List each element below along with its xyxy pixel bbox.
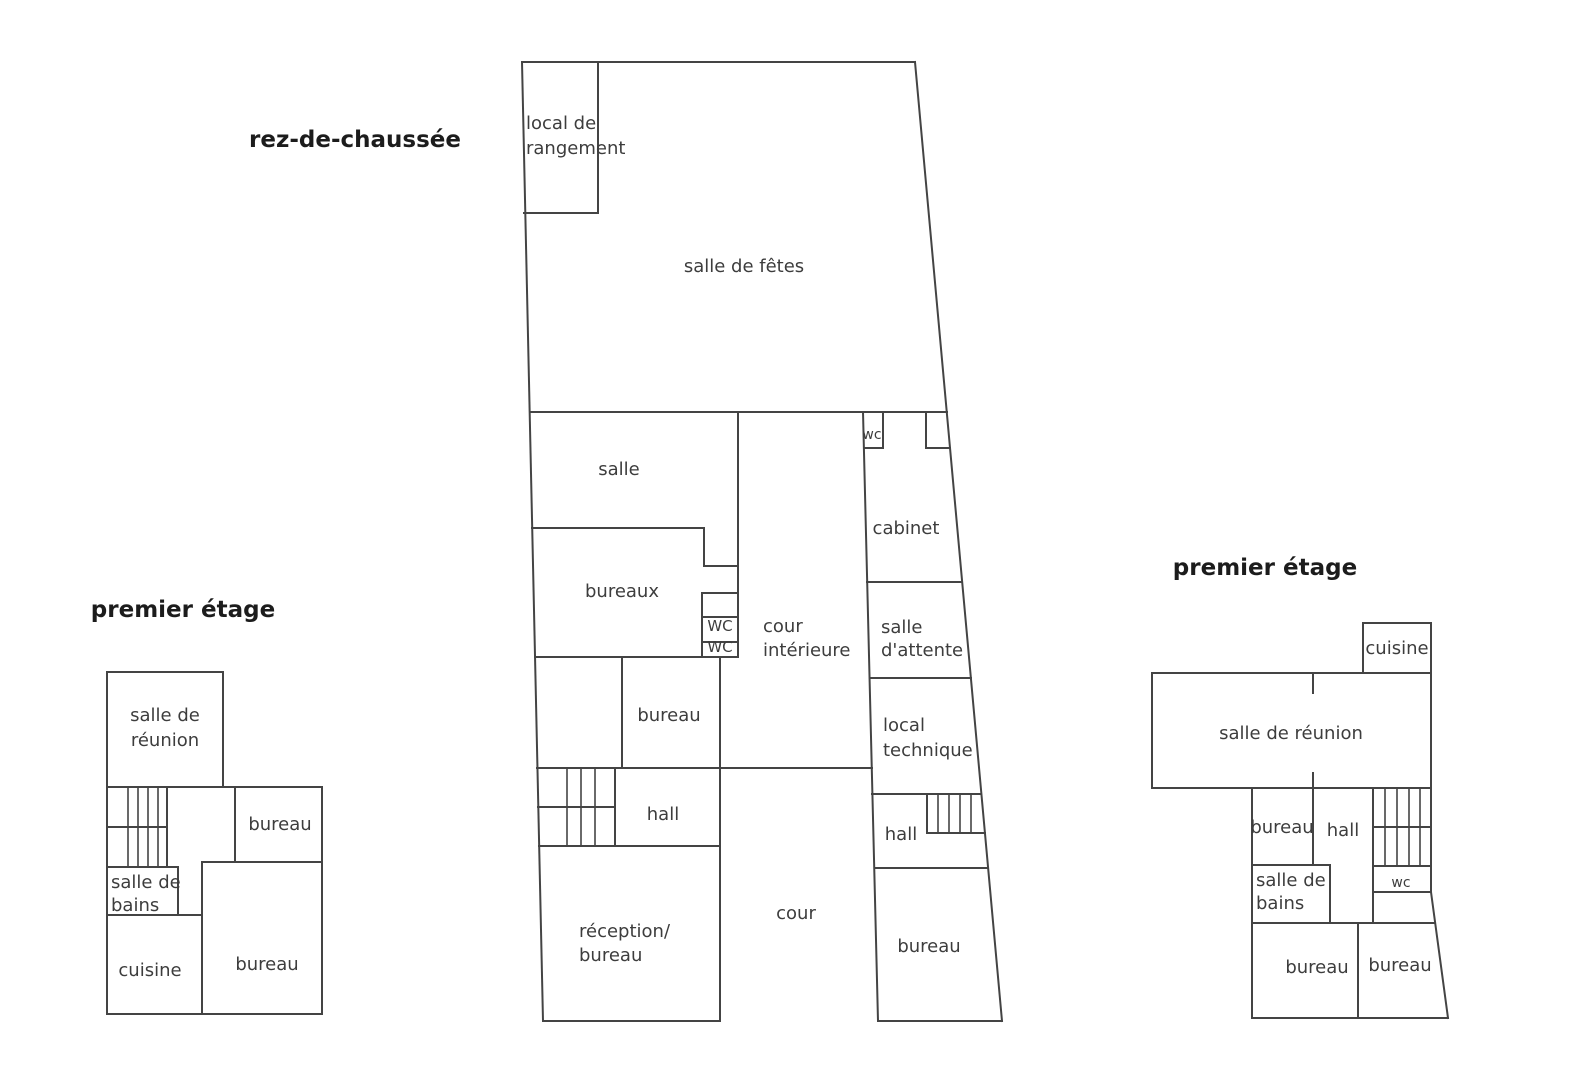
wall [1431, 892, 1448, 1018]
room-label-cuisine: cuisine [1365, 638, 1428, 659]
room-label-salle-de-reunion: réunion [131, 730, 199, 751]
room-label-bureau: bureau [248, 814, 311, 835]
room-label-cour-interieure: cour [763, 616, 803, 637]
room-label-bureaux: bureaux [585, 581, 659, 602]
room-label-salle-de-bains: salle de [1256, 870, 1326, 891]
room-label-cuisine: cuisine [118, 960, 181, 981]
room-label-local-de-rangement: local de [526, 113, 596, 134]
floor-plan-document: rez-de-chaussée local de rangement salle… [0, 0, 1585, 1080]
room-label-wc: wc [862, 427, 881, 443]
staircase [107, 787, 167, 867]
room-label-cabinet: cabinet [873, 518, 940, 539]
room-label-bureau: bureau [897, 936, 960, 957]
room-label-salle-de-reunion: salle de réunion [1219, 723, 1363, 744]
room-label-bureau: bureau [1368, 955, 1431, 976]
staircase [1373, 788, 1431, 865]
room-label-cour: cour [776, 903, 816, 924]
room-label-hall: hall [1327, 820, 1359, 841]
room-label-wc: WC [707, 638, 732, 656]
room-label-hall: hall [885, 824, 917, 845]
room-label-salle-de-bains: bains [1256, 893, 1304, 914]
staircase [538, 768, 615, 846]
room-label-local-de-rangement: rangement [526, 138, 625, 159]
floor-title-first-west: premier étage [91, 597, 275, 623]
room-label-salle-de-bains: bains [111, 895, 159, 916]
room-label-salle: salle [598, 459, 639, 480]
floor-plan-drawing: rez-de-chaussée local de rangement salle… [0, 0, 1585, 1080]
first-floor-west-plan: premier étage salle de réunion bureau sa… [91, 597, 322, 1014]
room-label-local-technique: technique [883, 740, 973, 761]
room-label-salle-de-bains: salle de [111, 872, 181, 893]
room-label-salle-d-attente: d'attente [881, 640, 963, 661]
room-label-hall: hall [647, 804, 679, 825]
room-label-bureau: bureau [1250, 817, 1313, 838]
wall [915, 62, 1002, 1021]
room-label-reception-bureau: réception/ [579, 921, 671, 942]
floor-title-first-east: premier étage [1173, 555, 1357, 581]
room-label-bureau: bureau [637, 705, 700, 726]
wall [863, 412, 878, 1021]
ground-floor-plan: rez-de-chaussée local de rangement salle… [249, 62, 1002, 1021]
ground-floor-walls [522, 62, 1002, 1021]
floor-title-ground: rez-de-chaussée [249, 127, 461, 153]
room-label-salle-de-reunion: salle de [130, 705, 200, 726]
room-label-cour-interieure: intérieure [763, 640, 851, 661]
room-label-bureau: bureau [235, 954, 298, 975]
room-label-reception-bureau: bureau [579, 945, 642, 966]
first-floor-east-plan: premier étage cuisine salle de réunion b… [1152, 555, 1448, 1018]
room-label-wc: WC [707, 617, 732, 635]
room-label-wc: wc [1391, 875, 1410, 891]
staircase [927, 794, 985, 833]
room-label-bureau: bureau [1285, 957, 1348, 978]
wall [522, 62, 543, 1021]
room-label-salle-de-fetes: salle de fêtes [684, 256, 804, 277]
room-label-local-technique: local [883, 715, 925, 736]
room-label-salle-d-attente: salle [881, 617, 922, 638]
